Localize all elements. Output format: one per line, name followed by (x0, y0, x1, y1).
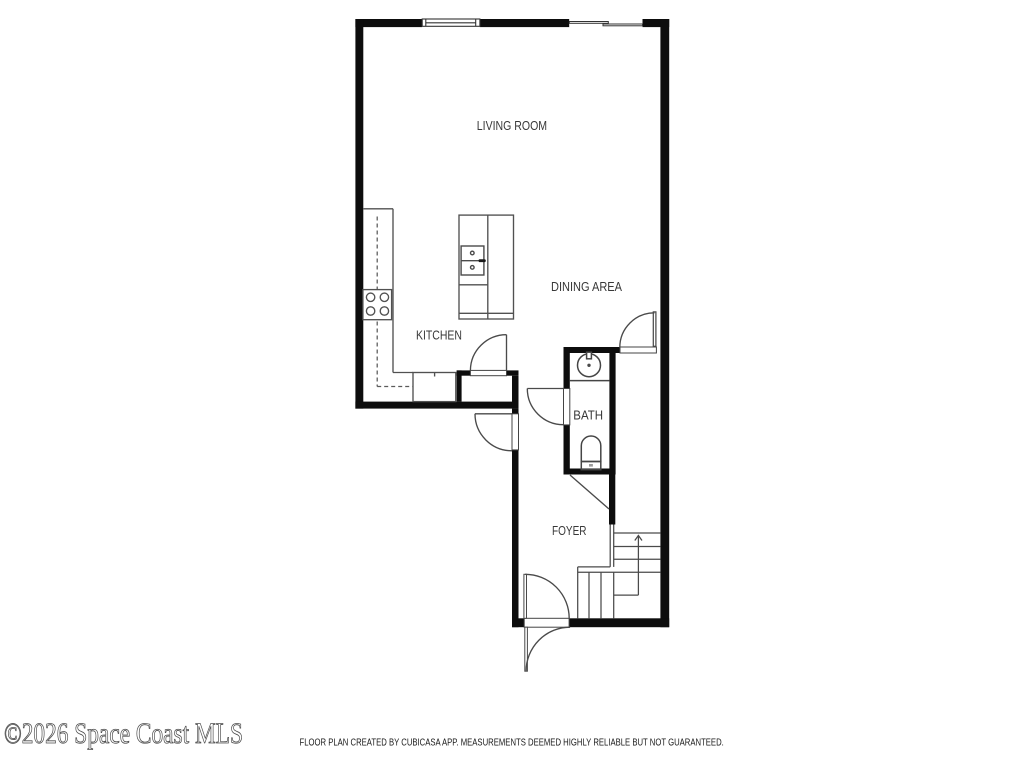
svg-text:FLOOR PLAN CREATED BY CUBICASA: FLOOR PLAN CREATED BY CUBICASA APP. MEAS… (300, 738, 724, 749)
svg-text:FOYER: FOYER (552, 523, 587, 538)
svg-text:LIVING ROOM: LIVING ROOM (477, 118, 547, 133)
svg-text:©2026 Space Coast MLS: ©2026 Space Coast MLS (4, 717, 243, 750)
svg-text:DINING AREA: DINING AREA (551, 279, 622, 294)
svg-text:BATH: BATH (573, 408, 603, 423)
svg-text:KITCHEN: KITCHEN (416, 327, 462, 342)
